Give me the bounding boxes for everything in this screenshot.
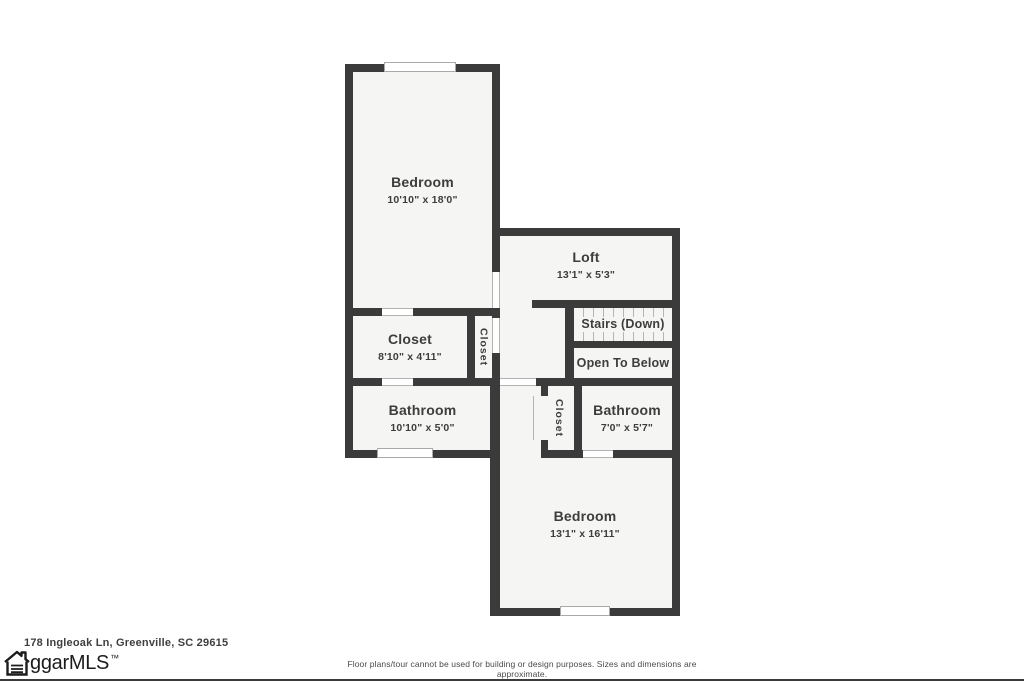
wall-segment <box>467 308 475 386</box>
room-label: Bedroom <box>554 508 617 524</box>
closet-doorway-line <box>533 396 534 440</box>
room-bedroom-closet: Closet <box>544 386 574 450</box>
wall-segment <box>541 450 583 458</box>
house-icon <box>2 649 32 677</box>
wall-segment <box>345 308 382 316</box>
property-address: 178 Ingleoak Ln, Greenville, SC 29615 <box>24 637 228 649</box>
wall-segment <box>492 64 500 272</box>
wall-segment <box>500 228 680 236</box>
room-hall-closet: Closet <box>475 310 492 384</box>
page-bottom-rule <box>0 679 1024 681</box>
door-opening <box>382 378 413 386</box>
room-dimensions: 10'10" x 5'0" <box>390 422 454 434</box>
room-dimensions: 8'10" x 4'11" <box>378 351 442 363</box>
wall-segment <box>613 450 672 458</box>
room-bathroom-left: Bathroom 10'10" x 5'0" <box>353 386 492 450</box>
window-symbol <box>384 62 456 72</box>
room-label: Closet <box>388 331 432 347</box>
room-label: Stairs (Down) <box>577 317 668 331</box>
door-opening <box>492 318 500 353</box>
wall-segment <box>532 300 672 308</box>
room-label: Closet <box>553 399 565 437</box>
wall-segment <box>672 228 680 616</box>
room-bedroom-upper: Bedroom 10'10" x 18'0" <box>353 72 492 308</box>
wall-segment <box>345 64 353 458</box>
wall-segment <box>574 341 672 348</box>
room-label: Open To Below <box>577 356 670 370</box>
room-label: Closet <box>478 328 490 366</box>
room-label: Bathroom <box>593 402 661 418</box>
room-walk-in-closet: Closet 8'10" x 4'11" <box>353 316 467 378</box>
room-dimensions: 13'1" x 5'3" <box>557 269 615 281</box>
room-bathroom-right: Bathroom 7'0" x 5'7" <box>582 386 672 450</box>
wall-segment <box>536 378 672 386</box>
door-opening <box>382 308 413 316</box>
door-opening <box>500 378 536 386</box>
room-label: Bedroom <box>391 174 454 190</box>
floor-plan-page: Bedroom 10'10" x 18'0" Loft 13'1" x 5'3"… <box>0 0 1024 682</box>
door-opening <box>492 272 500 308</box>
room-loft: Loft 13'1" x 5'3" <box>500 236 672 300</box>
room-dimensions: 7'0" x 5'7" <box>601 422 653 434</box>
logo-text: ggarMLS™ <box>30 652 119 675</box>
room-stairs: Stairs (Down) <box>574 308 672 341</box>
room-label: Bathroom <box>389 402 457 418</box>
wall-segment <box>574 386 582 458</box>
room-label: Loft <box>572 249 599 265</box>
room-dimensions: 10'10" x 18'0" <box>387 194 457 206</box>
wall-segment <box>345 378 382 386</box>
trademark-symbol: ™ <box>110 653 119 663</box>
mls-logo: ggarMLS™ <box>2 649 119 677</box>
room-dimensions: 13'1" x 16'11" <box>550 528 620 540</box>
disclaimer-text: Floor plans/tour cannot be used for buil… <box>332 659 712 679</box>
door-opening <box>583 450 613 458</box>
room-open-to-below: Open To Below <box>574 348 672 378</box>
wall-segment <box>565 308 574 386</box>
room-bedroom-lower: Bedroom 13'1" x 16'11" <box>498 458 672 608</box>
